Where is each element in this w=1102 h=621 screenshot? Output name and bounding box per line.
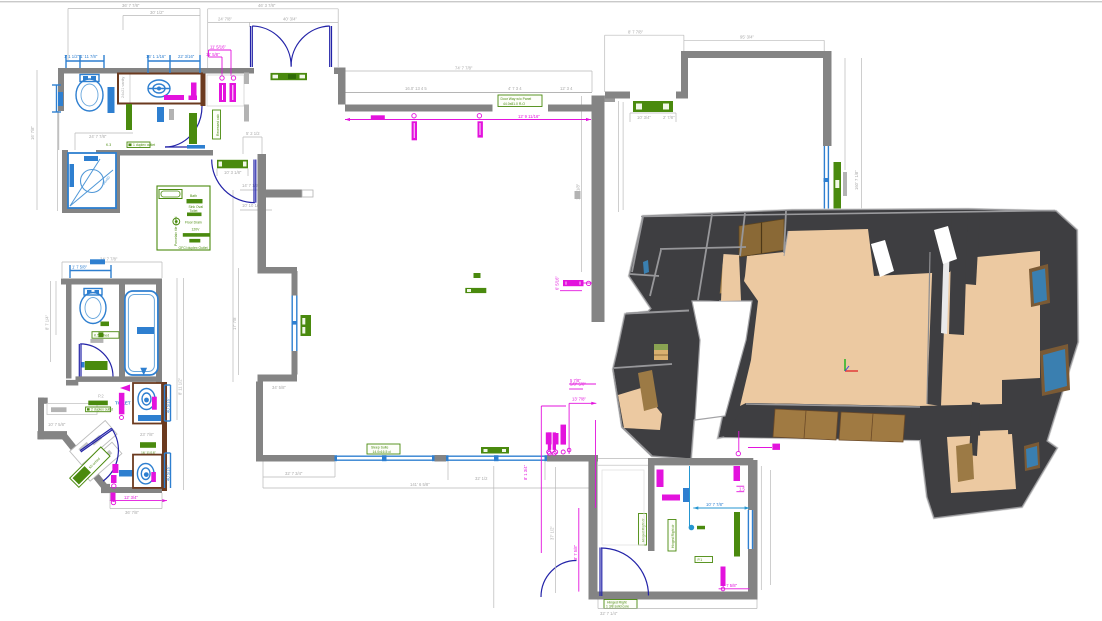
svg-text:1.5: 1.5	[739, 487, 745, 492]
svg-text:Toilet: Toilet	[190, 209, 198, 213]
svg-text:24' 7 7/8": 24' 7 7/8"	[89, 134, 107, 139]
svg-text:1' 7 5/8": 1' 7 5/8"	[722, 583, 738, 588]
svg-text:Hinged Right dr: Hinged Right dr	[642, 518, 646, 542]
svg-text:95' 3/4": 95' 3/4"	[740, 35, 754, 40]
svg-text:P.1: P.1	[698, 558, 703, 562]
svg-text:GFCI duplex Outlet: GFCI duplex Outlet	[179, 246, 208, 250]
svg-text:8' 7 1/4": 8' 7 1/4"	[45, 314, 50, 330]
svg-text:16' 1 1/16": 16' 1 1/16"	[146, 54, 166, 59]
svg-text:P.2: P.2	[98, 394, 104, 399]
svg-text:141' 6 5/8": 141' 6 5/8"	[410, 482, 430, 487]
svg-text:1' 7 5/8": 1' 7 5/8"	[72, 265, 88, 270]
svg-text:44.0x81.0 R-O: 44.0x81.0 R-O	[503, 102, 525, 106]
svg-text:10' 3/4": 10' 3/4"	[637, 115, 651, 120]
svg-text:24x21 vanity: 24x21 vanity	[121, 77, 125, 98]
svg-text:Sleep Suite: Sleep Suite	[371, 446, 388, 450]
svg-text:11' 5/8": 11' 5/8"	[206, 52, 220, 57]
svg-text:22' 3/16": 22' 3/16"	[178, 54, 195, 59]
svg-text:30' 1/2": 30' 1/2"	[150, 10, 164, 15]
svg-text:8' 11 1/2": 8' 11 1/2"	[178, 377, 183, 395]
svg-text:23' 7/8": 23' 7/8"	[140, 432, 154, 437]
svg-text:12' 3 4: 12' 3 4	[560, 86, 573, 91]
svg-text:120V: 120V	[192, 228, 201, 232]
svg-text:32' 7 3/4": 32' 7 3/4"	[285, 471, 303, 476]
svg-text:Door Way w/o Panel: Door Way w/o Panel	[501, 97, 532, 101]
svg-text:4' 7 3 4: 4' 7 3 4	[508, 86, 522, 91]
svg-text:8' 7 7/8": 8' 7 7/8"	[628, 30, 644, 35]
svg-text:10' 7 5/8": 10' 7 5/8"	[48, 422, 66, 427]
svg-text:37' 1/2": 37' 1/2"	[550, 526, 555, 540]
svg-text:1 3/8 solid core: 1 3/8 solid core	[606, 604, 629, 608]
svg-text:17' 7/8: 17' 7/8	[232, 317, 237, 330]
svg-text:16.0' 13 4 5: 16.0' 13 4 5	[405, 86, 427, 91]
svg-text:11' 5/16": 11' 5/16"	[210, 45, 226, 50]
svg-text:2 duplex outlet: 2 duplex outlet	[91, 408, 113, 412]
svg-text:74' 7 7/8": 74' 7 7/8"	[455, 66, 473, 71]
svg-text:12' 3/4": 12' 3/4"	[124, 495, 138, 500]
svg-text:12' 9 11/16": 12' 9 11/16"	[518, 114, 540, 119]
svg-text:1' 1 1/2" 1' 11 7/8": 1' 1 1/2" 1' 11 7/8"	[64, 54, 98, 59]
svg-text:24' 7/8": 24' 7/8"	[218, 17, 232, 22]
svg-text:32' 1/2: 32' 1/2	[475, 476, 488, 481]
svg-text:32' 7 1/4": 32' 7 1/4"	[600, 611, 618, 616]
svg-text:1 duplex outlet: 1 duplex outlet	[133, 143, 155, 147]
svg-text:Recessed cab: Recessed cab	[216, 114, 220, 136]
svg-text:40 5/16": 40 5/16"	[165, 465, 170, 481]
svg-text:5' 2 1/2: 5' 2 1/2	[246, 131, 260, 136]
svg-text:K.3: K.3	[106, 143, 111, 147]
svg-text:40 5/16": 40 5/16"	[165, 397, 170, 413]
svg-text:10' 7 7/8": 10' 7 7/8"	[706, 502, 724, 507]
svg-text:8' 1 3/4": 8' 1 3/4"	[523, 464, 528, 480]
svg-text:13' 7/8": 13' 7/8"	[572, 397, 586, 402]
svg-text:16' 7/8": 16' 7/8"	[30, 126, 35, 140]
svg-text:160' 7 1/8": 160' 7 1/8"	[854, 170, 859, 190]
svg-text:Floor Drain: Floor Drain	[185, 221, 202, 225]
svg-text:46' 3 7/8": 46' 3 7/8"	[258, 3, 276, 8]
svg-text:8' 7 5/8": 8' 7 5/8"	[573, 544, 578, 560]
svg-text:40' 3/4": 40' 3/4"	[283, 17, 297, 22]
svg-text:36' 7/8": 36' 7/8"	[125, 510, 139, 515]
svg-text:Hinged Right dr: Hinged Right dr	[671, 524, 675, 548]
svg-text:36' 7 7/8": 36' 7 7/8"	[122, 3, 140, 8]
svg-text:6' 5/16": 6' 5/16"	[555, 276, 560, 290]
svg-text:34' 5/8": 34' 5/8"	[272, 385, 286, 390]
svg-text:2' 7/8": 2' 7/8"	[663, 115, 675, 120]
svg-text:14.0x16.5 cl: 14.0x16.5 cl	[373, 450, 392, 454]
svg-text:10' 3 1/8": 10' 3 1/8"	[224, 170, 242, 175]
svg-text:5 7/8": 5 7/8"	[570, 378, 581, 383]
svg-text:Bath: Bath	[190, 194, 197, 198]
